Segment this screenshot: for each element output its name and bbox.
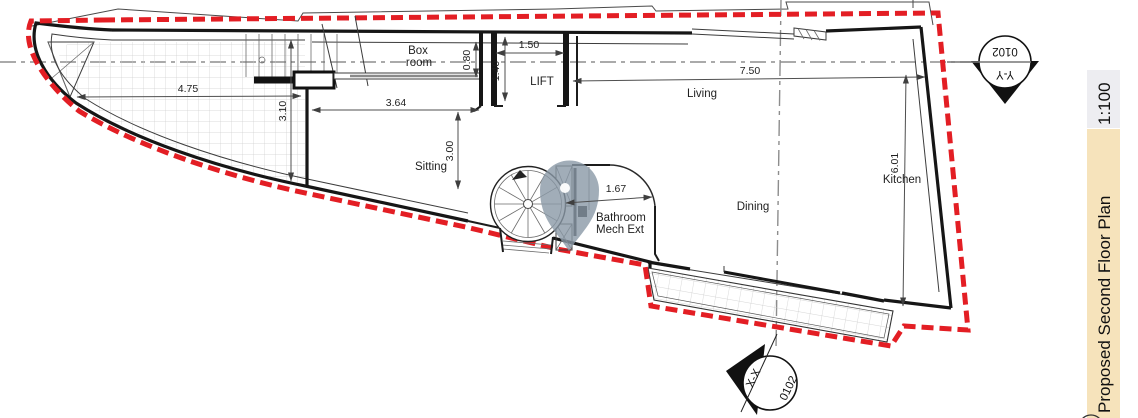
drawing-scale: 1:100 (1095, 82, 1114, 125)
label-living: Living (687, 88, 717, 100)
dim-terrace-depth: 3.10 (277, 101, 289, 122)
label-lift: LIFT (530, 76, 554, 88)
stair-landing (294, 72, 334, 88)
dim-terrace-width: 4.75 (178, 83, 199, 95)
section-marker-xx: X-X 0102 (726, 334, 800, 415)
section-marker-yy: 0102 Y-Y (947, 36, 1039, 104)
dim-sitting-width: 3.64 (386, 97, 407, 109)
label-sitting: Sitting (415, 161, 447, 173)
yy-sheet-number: 0102 (992, 45, 1018, 57)
top-wall-window (692, 28, 826, 41)
dim-lift-width: 1.50 (519, 39, 540, 51)
label-bathroom-1: Bathroom (596, 212, 646, 224)
label-kitchen: Kitchen (883, 174, 921, 186)
dim-living-width: 7.50 (740, 65, 761, 77)
title-banner: 1:100 Proposed Second Floor Plan (1079, 70, 1120, 418)
label-box-room-2: room (406, 57, 432, 69)
label-dining: Dining (737, 201, 770, 213)
drawing-title: Proposed Second Floor Plan (1095, 196, 1114, 413)
label-box-room-1: Box (408, 45, 428, 57)
pin-dot (560, 183, 570, 193)
dim-sitting-depth: 3.00 (444, 141, 456, 162)
dim-box-room-depth: 0.80 (461, 50, 473, 71)
dim-bathroom-width: 1.67 (606, 183, 627, 195)
dim-kitchen-depth: 6.01 (889, 153, 901, 174)
yy-label: Y-Y (996, 68, 1014, 80)
floor-plan-sheet: 4.75 3.10 3.64 3.00 0.80 1.50 1.40 7.50 … (0, 0, 1138, 418)
dim-lift-depth: 1.40 (490, 61, 502, 82)
room-labels: Box room LIFT Sitting Living Dining Kitc… (406, 45, 921, 236)
location-pin-icon[interactable] (540, 161, 599, 252)
label-bathroom-2: Mech Ext (596, 224, 645, 236)
floor-plan-canvas: 4.75 3.10 3.64 3.00 0.80 1.50 1.40 7.50 … (0, 0, 1138, 418)
